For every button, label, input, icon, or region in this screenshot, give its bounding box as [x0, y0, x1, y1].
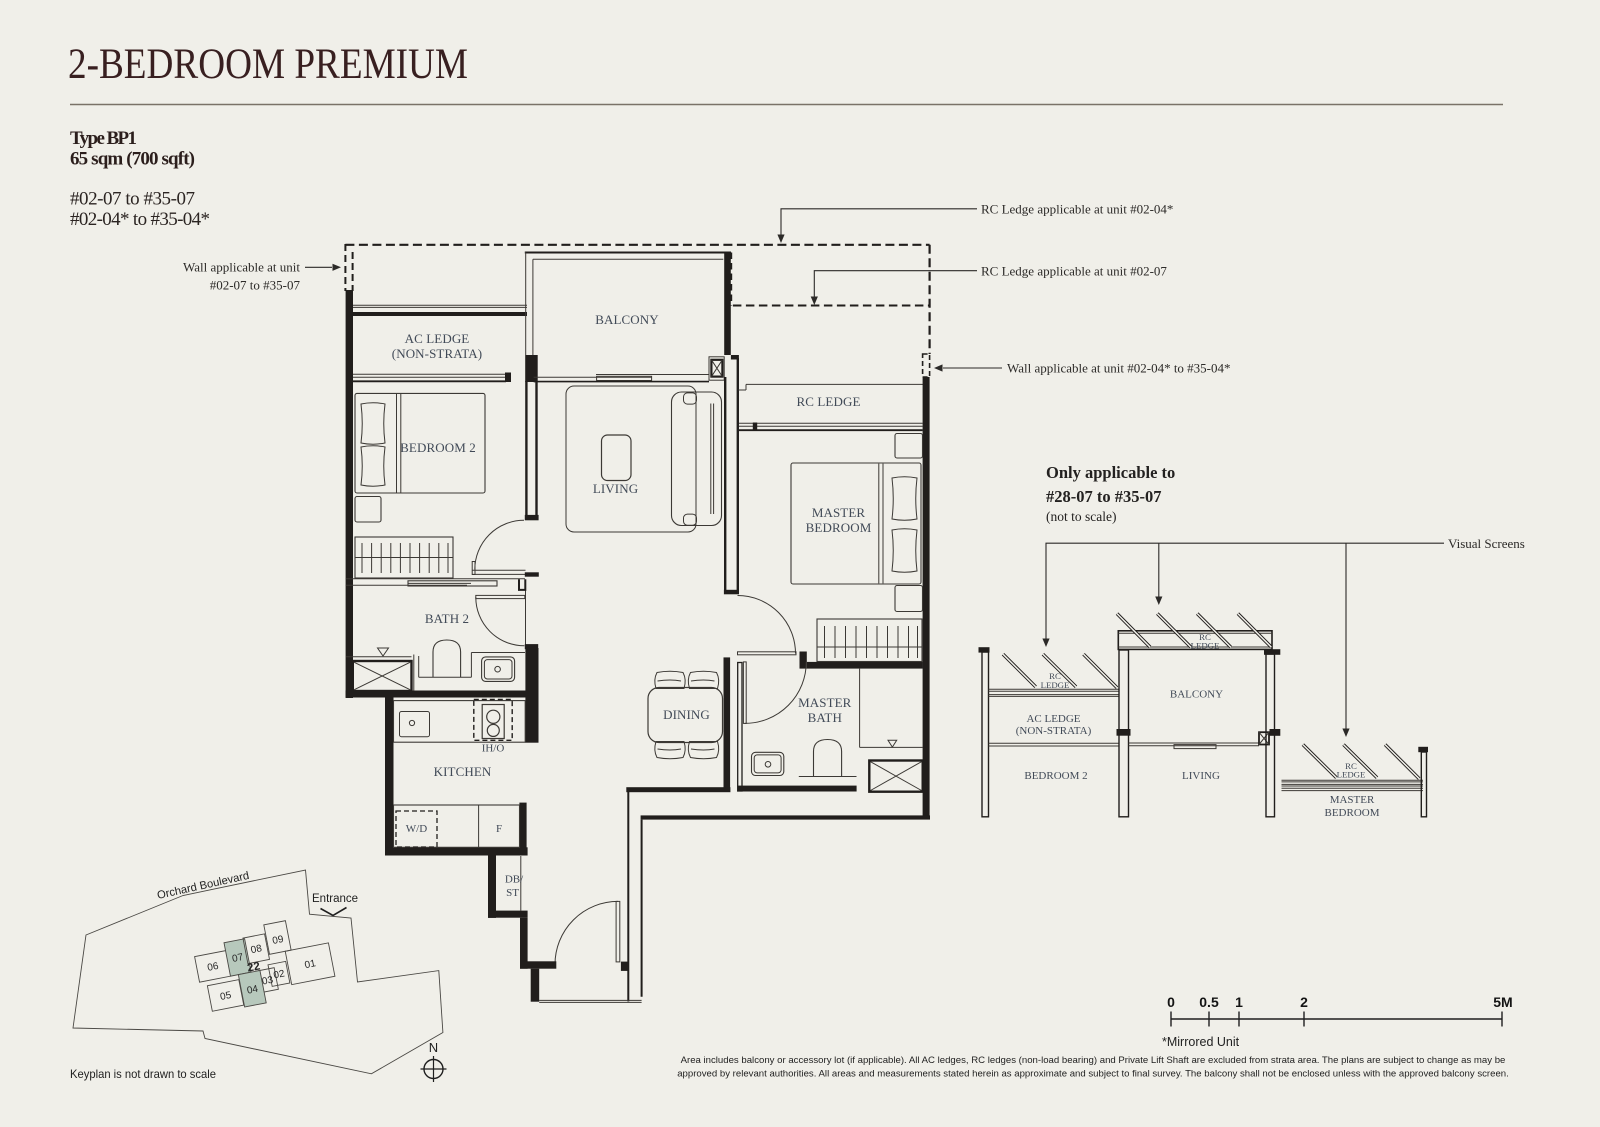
svg-text:BEDROOM: BEDROOM: [806, 520, 872, 535]
svg-text:BALCONY: BALCONY: [595, 312, 659, 327]
svg-text:Area includes balcony or acces: Area includes balcony or accessory lot (…: [681, 1055, 1506, 1066]
svg-text:Keyplan is not drawn to scale: Keyplan is not drawn to scale: [70, 1067, 216, 1081]
svg-text:1: 1: [1235, 994, 1243, 1010]
svg-text:LEDGE: LEDGE: [1337, 770, 1366, 780]
svg-text:0.5: 0.5: [1199, 994, 1219, 1010]
svg-text:MASTER: MASTER: [812, 505, 866, 520]
svg-text:65 sqm (700 sqft): 65 sqm (700 sqft): [70, 149, 195, 170]
svg-text:#02-07 to #35-07: #02-07 to #35-07: [210, 278, 301, 293]
svg-text:BEDROOM 2: BEDROOM 2: [1024, 770, 1087, 782]
svg-text:(NON-STRATA): (NON-STRATA): [1016, 725, 1092, 737]
svg-text:Only applicable to: Only applicable to: [1046, 463, 1175, 482]
svg-text:BATH 2: BATH 2: [425, 611, 469, 626]
svg-text:W/D: W/D: [406, 823, 427, 835]
svg-text:RC Ledge applicable at unit #0: RC Ledge applicable at unit #02-04*: [981, 202, 1173, 217]
svg-text:N: N: [429, 1040, 438, 1055]
svg-text:LIVING: LIVING: [1182, 770, 1220, 782]
svg-text:#02-04* to #35-04*: #02-04* to #35-04*: [70, 209, 210, 230]
svg-text:#02-07 to #35-07: #02-07 to #35-07: [70, 189, 195, 210]
svg-text:BATH: BATH: [808, 710, 842, 725]
svg-text:BEDROOM: BEDROOM: [1324, 807, 1379, 819]
svg-text:RC LEDGE: RC LEDGE: [797, 394, 861, 409]
svg-text:22: 22: [246, 960, 261, 974]
svg-text:LEDGE: LEDGE: [1041, 680, 1070, 690]
svg-text:MASTER: MASTER: [1330, 794, 1375, 806]
svg-text:Type BP1: Type BP1: [70, 128, 137, 149]
svg-text:Entrance: Entrance: [312, 893, 358, 905]
svg-text:(not to scale): (not to scale): [1046, 509, 1116, 524]
svg-text:Wall applicable at unit #02-04: Wall applicable at unit #02-04* to #35-0…: [1007, 361, 1231, 376]
svg-text:Wall applicable at unit: Wall applicable at unit: [183, 260, 300, 275]
svg-text:2: 2: [1300, 994, 1308, 1010]
svg-text:#28-07 to #35-07: #28-07 to #35-07: [1046, 487, 1161, 506]
svg-text:RC Ledge applicable at unit #0: RC Ledge applicable at unit #02-07: [981, 264, 1167, 279]
svg-text:BEDROOM 2: BEDROOM 2: [400, 440, 476, 455]
svg-text:(NON-STRATA): (NON-STRATA): [392, 346, 482, 361]
svg-text:KITCHEN: KITCHEN: [434, 764, 492, 779]
svg-text:LEDGE: LEDGE: [1191, 641, 1220, 651]
svg-text:LIVING: LIVING: [593, 481, 638, 496]
svg-text:F: F: [496, 823, 502, 835]
svg-text:DINING: DINING: [663, 707, 710, 722]
svg-text:0: 0: [1167, 994, 1175, 1010]
svg-text:approved by relevant authoriti: approved by relevant authorities. All ar…: [677, 1069, 1509, 1080]
svg-text:MASTER: MASTER: [798, 695, 852, 710]
svg-text:AC LEDGE: AC LEDGE: [405, 331, 470, 346]
svg-text:IH/O: IH/O: [482, 743, 505, 755]
svg-text:*Mirrored Unit: *Mirrored Unit: [1162, 1035, 1240, 1049]
svg-text:AC LEDGE: AC LEDGE: [1026, 713, 1080, 725]
svg-text:5M: 5M: [1493, 994, 1512, 1010]
svg-text:ST: ST: [506, 887, 519, 899]
svg-text:Visual Screens: Visual Screens: [1448, 536, 1525, 551]
svg-text:2-BEDROOM PREMIUM: 2-BEDROOM PREMIUM: [68, 41, 468, 88]
svg-text:BALCONY: BALCONY: [1170, 689, 1223, 701]
svg-text:DB/: DB/: [505, 874, 524, 886]
